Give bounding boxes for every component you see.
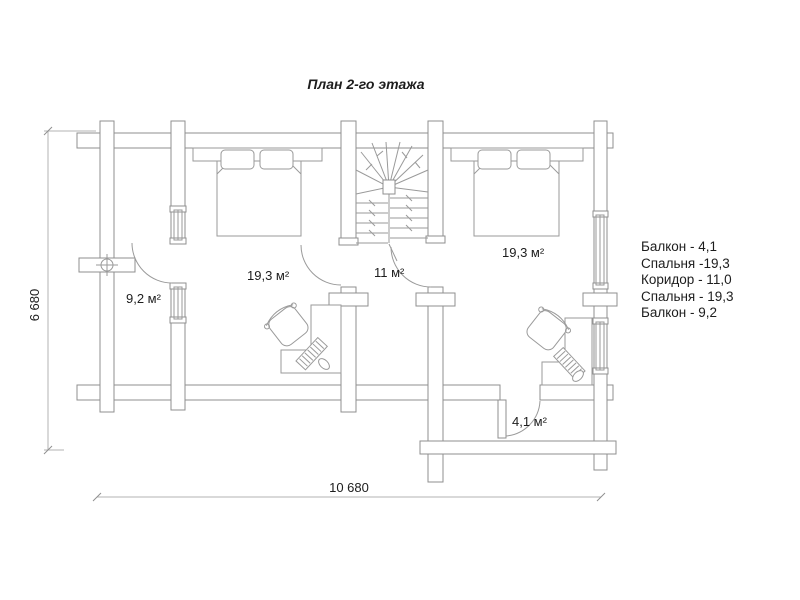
door-jamb-right [426, 236, 445, 243]
door-leaf-balcony [498, 400, 506, 438]
floor-plan-drawing: План 2-го этажа [0, 0, 800, 600]
wall-stair-left-upper [341, 121, 356, 245]
room-label-bedroom-right: 19,3 м² [502, 245, 545, 260]
pillow [221, 150, 254, 169]
legend-item: Спальня -19,3 [641, 256, 730, 271]
stair-newel-post [383, 180, 395, 194]
log-joint-circle-icon [96, 254, 118, 276]
room-label-balcony-bottom: 4,1 м² [512, 414, 548, 429]
office-chair-icon [262, 300, 314, 351]
dim-width-label: 10 680 [329, 480, 369, 495]
door-arc-bedroom-left [301, 245, 341, 285]
pillow [517, 150, 550, 169]
room-label-balcony-left: 9,2 м² [126, 291, 162, 306]
legend-item: Спальня - 19,3 [641, 289, 734, 304]
headboard-shelf [193, 148, 322, 161]
wall-balcony-bottom [420, 441, 616, 454]
double-bed-right-icon [451, 148, 583, 236]
room-label-bedroom-left: 19,3 м² [247, 268, 290, 283]
pillow [260, 150, 293, 169]
room-label-corridor: 11 м² [374, 265, 405, 280]
dim-height-label: 6 680 [27, 289, 42, 322]
bed-blanket [474, 161, 559, 236]
dimension-vertical: 6 680 [27, 127, 96, 454]
door-arc-balcony-left [132, 243, 172, 283]
floor-plan-page: План 2-го этажа [0, 0, 800, 600]
stairs-icon [356, 142, 428, 261]
legend-item: Балкон - 9,2 [641, 305, 717, 320]
pillow [478, 150, 511, 169]
legend-item: Коридор - 11,0 [641, 272, 732, 287]
bed-blanket [217, 161, 301, 236]
double-bed-left-icon [193, 148, 322, 236]
legend: Балкон - 4,1 Спальня -19,3 Коридор - 11,… [641, 239, 734, 320]
page-title: План 2-го этажа [307, 76, 424, 92]
wall-stair-right-upper [428, 121, 443, 243]
workstation-left [262, 300, 341, 373]
dimension-horizontal: 10 680 [93, 480, 605, 501]
log-stub-stair-right [416, 293, 455, 306]
legend-item: Балкон - 4,1 [641, 239, 717, 254]
log-stub-stair-left [329, 293, 368, 306]
door-jamb-left [339, 238, 358, 245]
log-stub-right-wall [583, 293, 617, 306]
workstation-right [521, 304, 592, 385]
